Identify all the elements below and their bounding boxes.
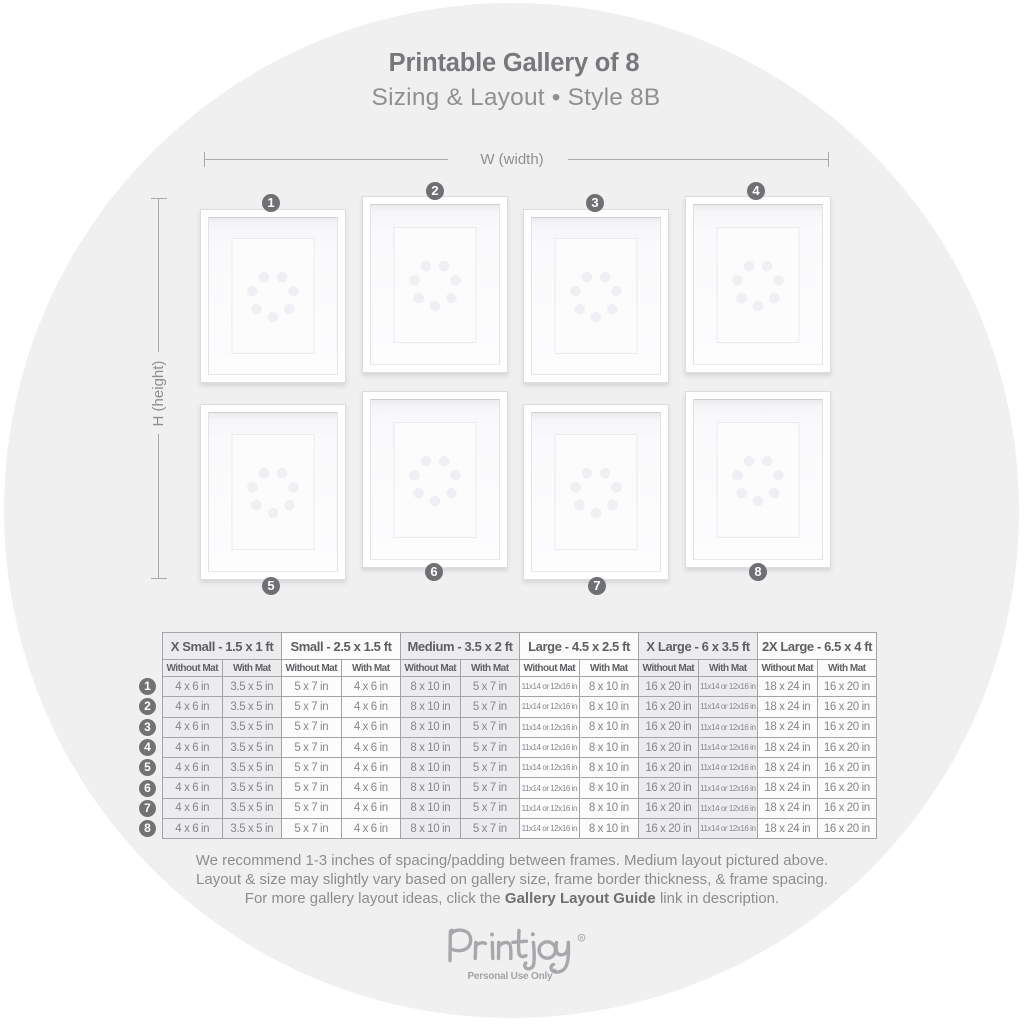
- svg-text:R: R: [580, 936, 584, 942]
